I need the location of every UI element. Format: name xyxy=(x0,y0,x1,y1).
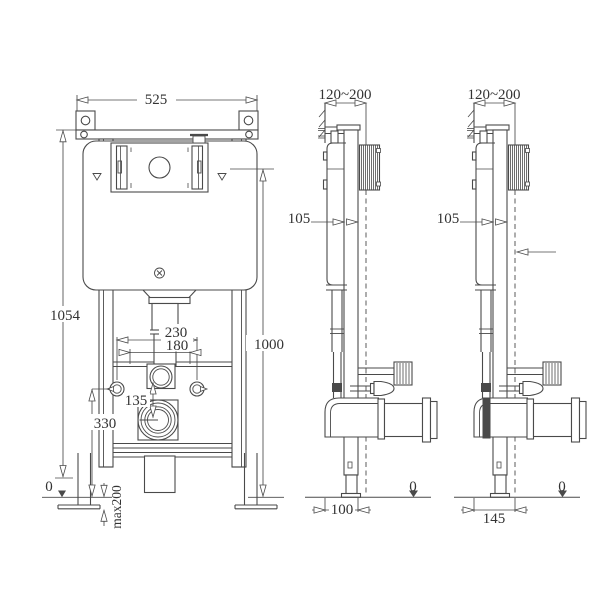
dim-front-floor-level: 0 xyxy=(45,479,53,495)
dim-side-min-floor-level: 0 xyxy=(409,479,417,495)
side-view-min-depth: 120~200 105 100 0 xyxy=(288,87,437,518)
technical-drawing-canvas: 525 1054 1000 230 180 135 330 max200 0 1… xyxy=(0,0,600,600)
dim-front-width: 525 xyxy=(145,92,168,108)
dim-side-max-depth-range: 120~200 xyxy=(467,87,520,103)
flush-pipe-dark-section xyxy=(483,398,491,439)
dim-front-frame-height: 1054 xyxy=(50,308,81,324)
dim-side-max-outlet-distance: 145 xyxy=(483,511,506,527)
dim-front-outlet-height: 330 xyxy=(94,416,117,432)
dim-side-max-floor-level: 0 xyxy=(558,479,566,495)
drain-outlet xyxy=(138,400,178,493)
dim-front-foot-adjust: max200 xyxy=(109,485,124,529)
dim-side-min-depth-range: 120~200 xyxy=(318,87,371,103)
dim-front-inlet-offset: 135 xyxy=(125,393,148,409)
floor-level-marker xyxy=(58,491,66,498)
wc-frame-technical-drawing: 525 1054 1000 230 180 135 330 max200 0 1… xyxy=(0,0,600,600)
flush-plate-opening xyxy=(111,143,208,192)
dim-side-min-profile-depth: 105 xyxy=(288,211,311,227)
dim-front-plate-height: 1000 xyxy=(254,337,284,353)
water-inlet xyxy=(147,364,175,389)
side-view-max-depth: 120~200 105 145 0 xyxy=(437,87,586,527)
dim-side-max-profile-depth: 105 xyxy=(437,211,460,227)
dim-front-bolt-inner: 180 xyxy=(166,338,189,354)
mounting-tabs xyxy=(76,111,258,130)
filler-valve-cap xyxy=(190,135,208,143)
dim-side-min-outlet-distance: 100 xyxy=(331,502,354,518)
front-view: 525 1054 1000 230 180 135 330 max200 0 xyxy=(41,90,292,529)
